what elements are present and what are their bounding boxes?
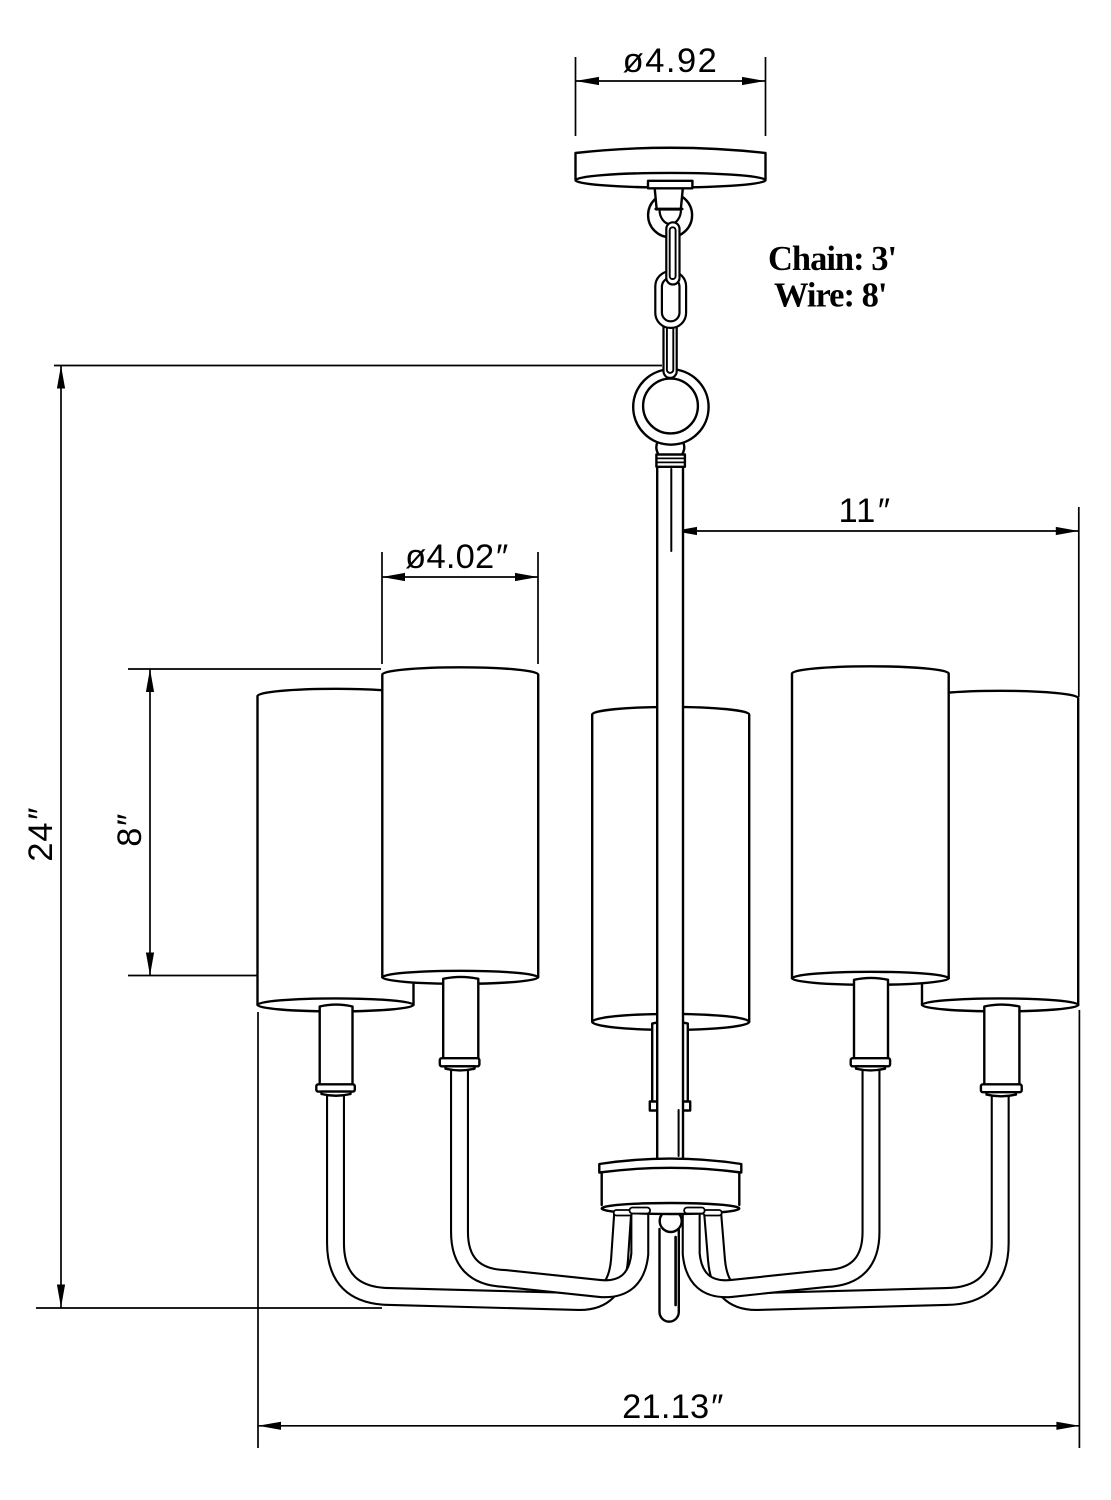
svg-text:Chain: 3': Chain: 3' <box>768 240 896 278</box>
svg-text:24″: 24″ <box>22 807 60 861</box>
svg-text:Wire: 8': Wire: 8' <box>774 277 886 315</box>
svg-text:ø4.92: ø4.92 <box>623 42 719 80</box>
svg-text:11″: 11″ <box>838 492 890 530</box>
svg-text:21.13″: 21.13″ <box>622 1388 723 1426</box>
svg-text:8″: 8″ <box>111 814 149 847</box>
svg-text:ø4.02″: ø4.02″ <box>405 538 508 576</box>
